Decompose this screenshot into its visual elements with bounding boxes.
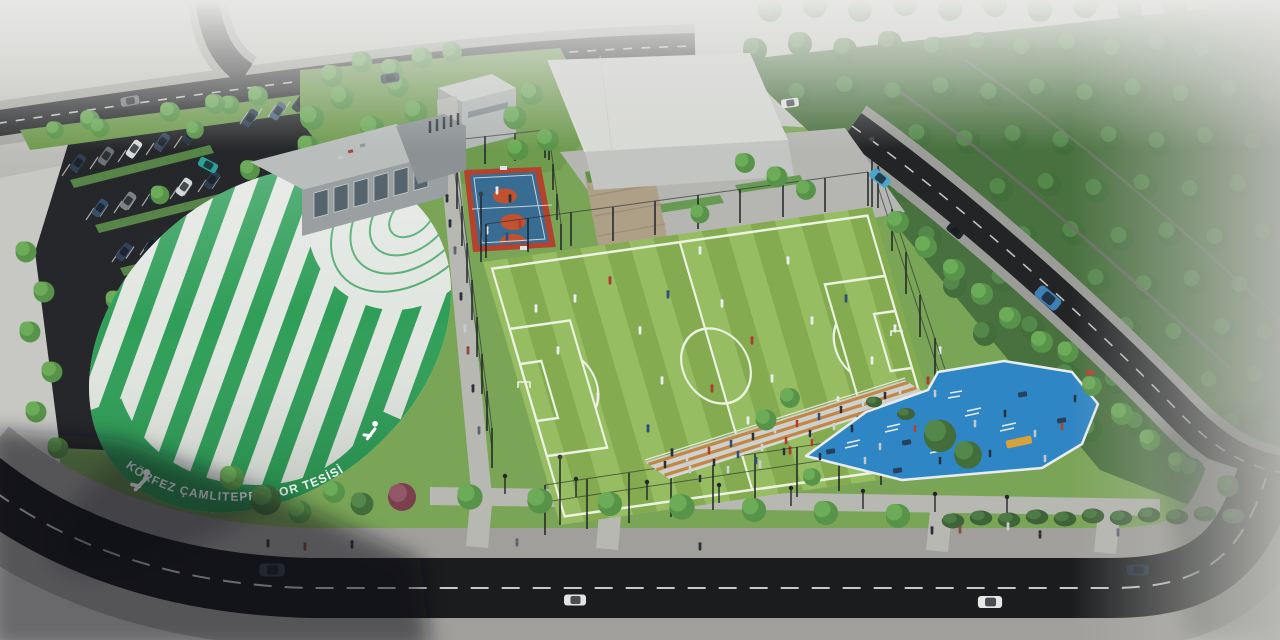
aerial-render: KÖRFEZ ÇAMLITEPE SPOR TESİSİ: [0, 0, 1280, 640]
basketball-hoop: [520, 246, 527, 250]
white-sedan: [978, 596, 1002, 608]
white-sedan: [564, 595, 586, 606]
top-fog: [0, 0, 1280, 150]
render-canvas: KÖRFEZ ÇAMLITEPE SPOR TESİSİ: [0, 0, 1280, 640]
maroon-tree: [388, 483, 416, 511]
walkway-branch: [466, 503, 492, 548]
basketball-hoop: [500, 166, 507, 170]
